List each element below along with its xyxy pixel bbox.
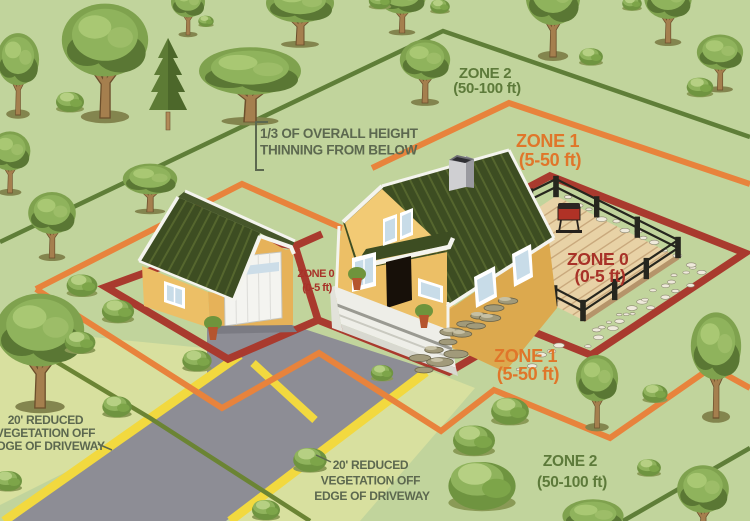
svg-text:ZONE 1 (5-50 ft): ZONE 1 (5-50 ft) xyxy=(516,131,584,170)
svg-text:ZONE 1 (5-50 ft): ZONE 1 (5-50 ft) xyxy=(494,346,562,384)
svg-text:1/3 OF OVERALL HEIGHT THINNING: 1/3 OF OVERALL HEIGHT THINNING FROM BELO… xyxy=(260,126,421,158)
svg-text:ZONE 2 (50-100 ft): ZONE 2 (50-100 ft) xyxy=(453,65,521,97)
svg-text:ZONE 0 (0-5 ft): ZONE 0 (0-5 ft) xyxy=(567,249,633,286)
